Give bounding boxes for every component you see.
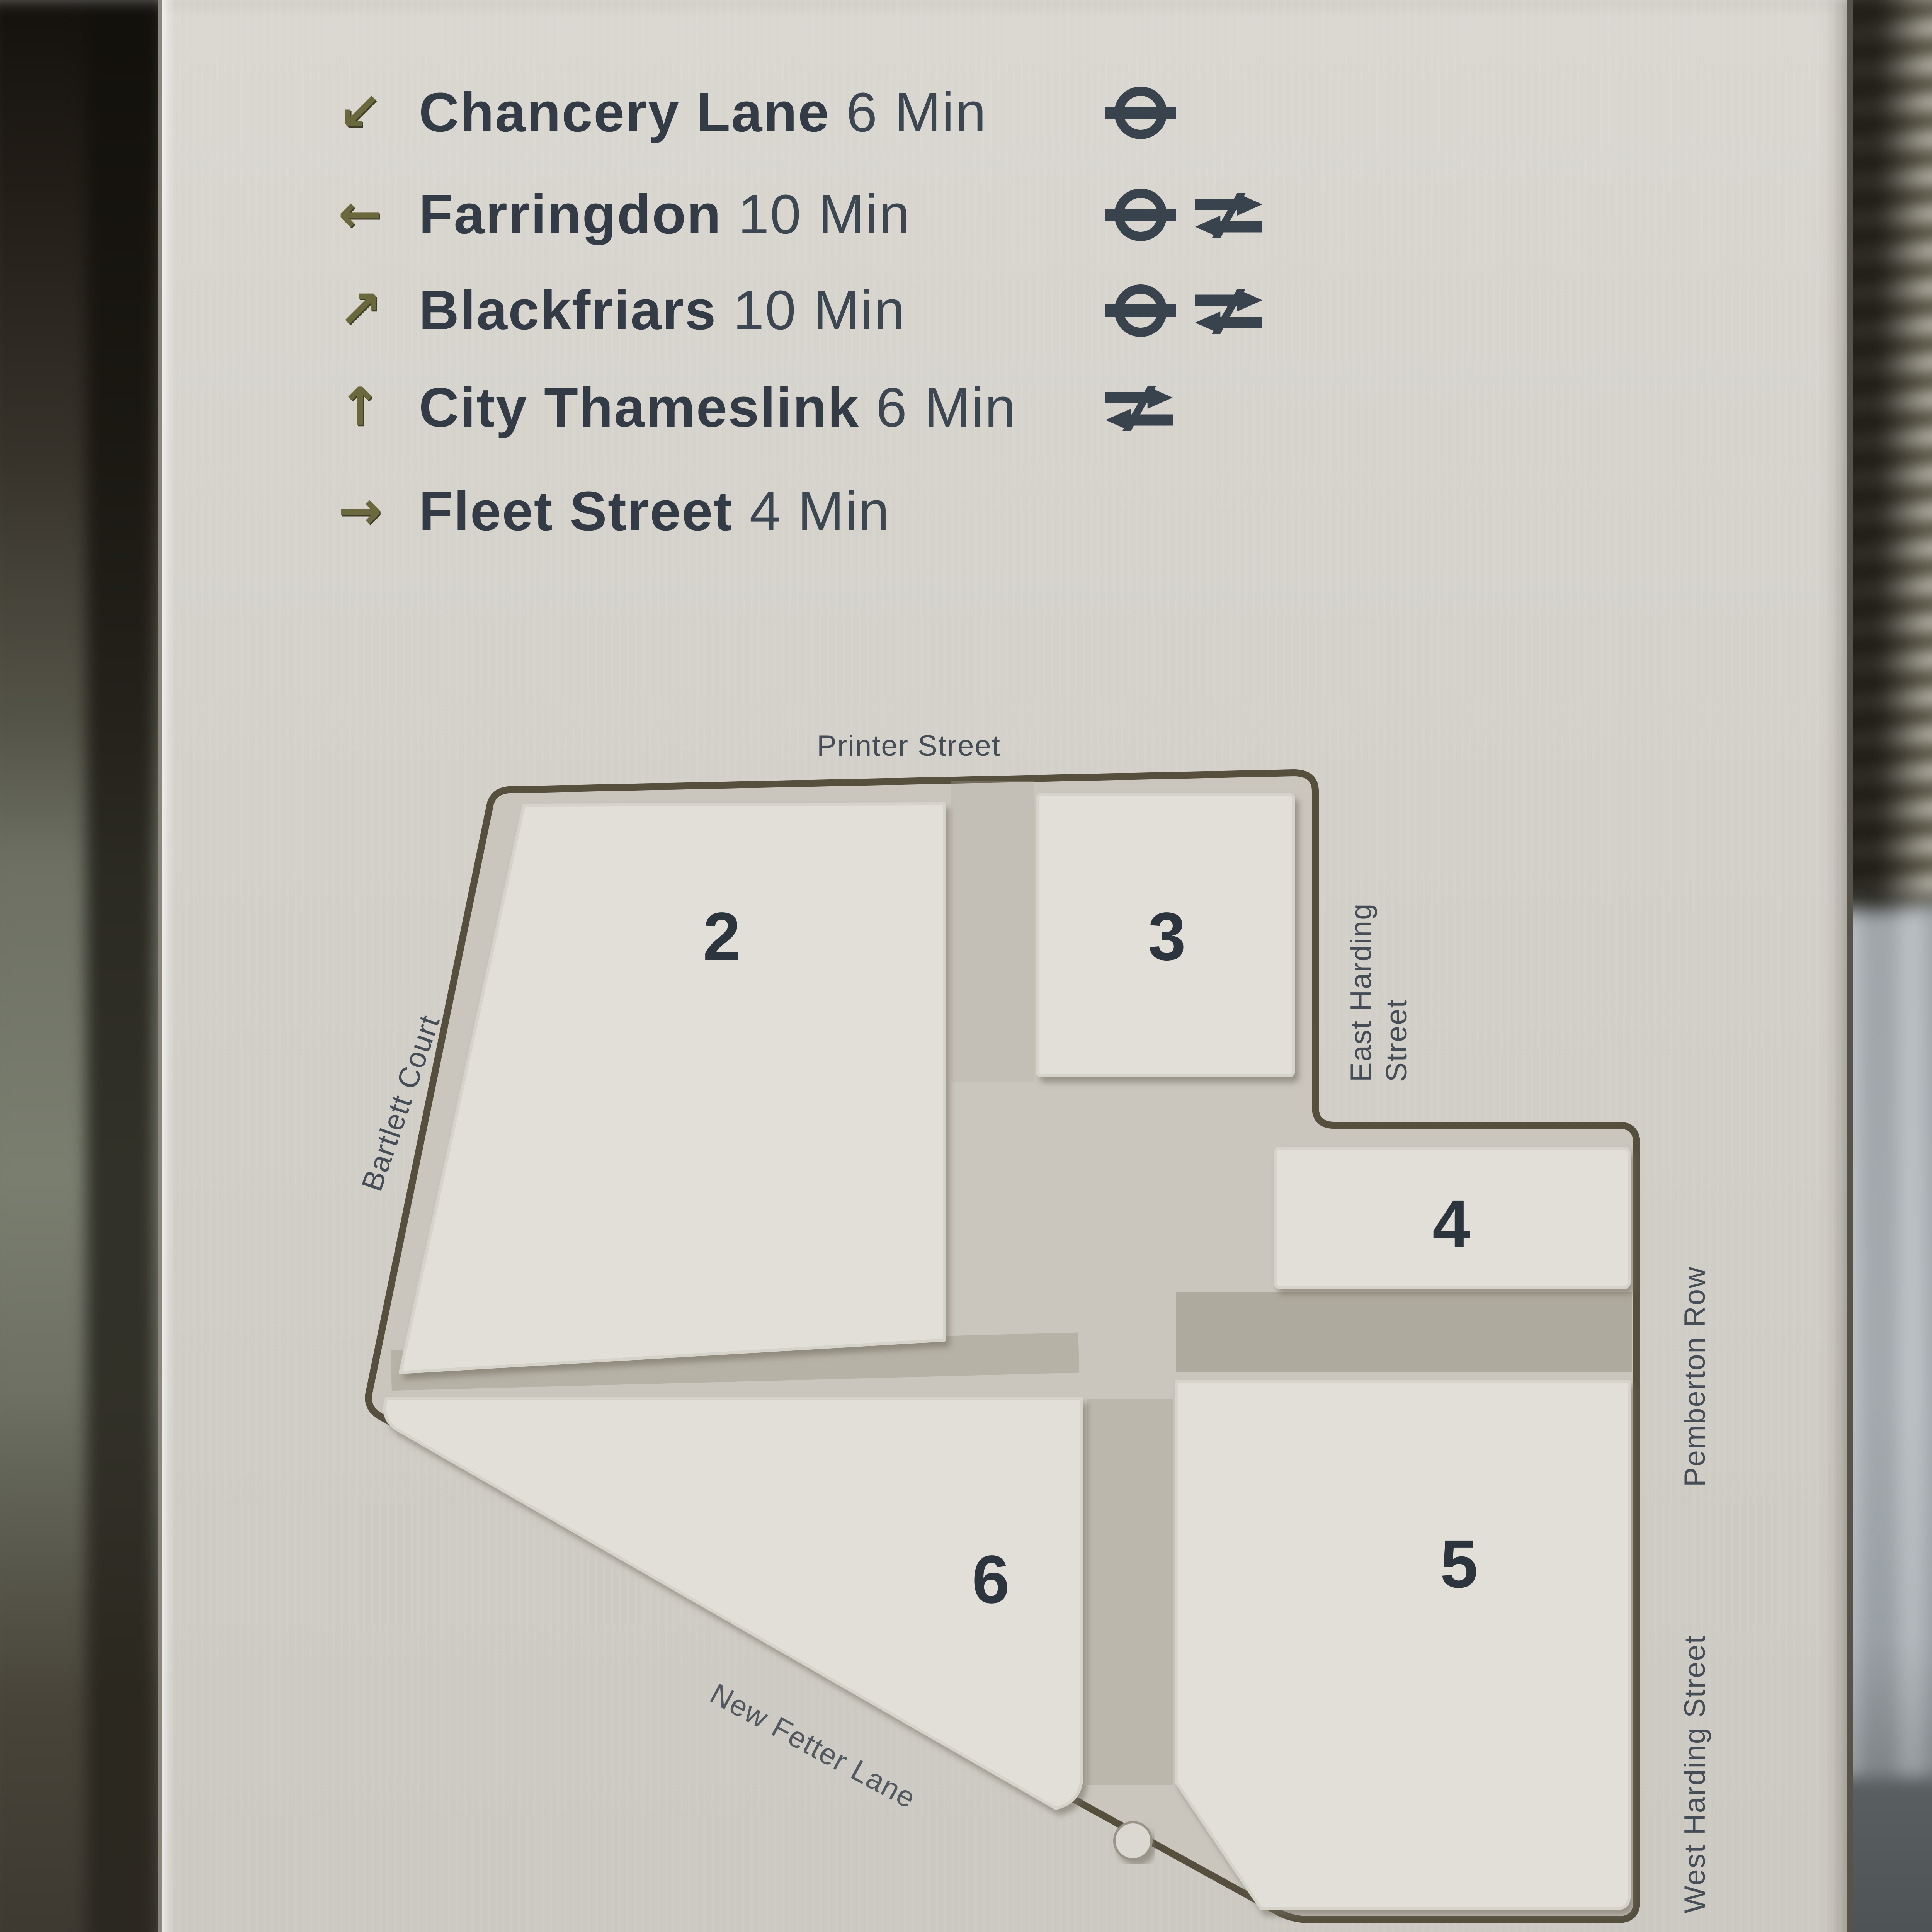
walk-time: 4 Min — [750, 479, 890, 543]
street-label-line: Street — [1380, 999, 1413, 1082]
street-label-east-harding-street: East HardingStreet — [1345, 903, 1413, 1082]
underground-icon — [1105, 283, 1176, 338]
street-label-printer-street: Printer Street — [817, 730, 1001, 762]
walk-time: 6 Min — [846, 80, 987, 144]
destination-name: City Thameslink — [419, 376, 859, 439]
underground-icon — [1105, 187, 1176, 243]
transit-modes — [1105, 283, 1263, 338]
arrow-up-right-icon: ↗ — [311, 274, 410, 348]
stain — [1087, 1399, 1173, 1785]
street-label-west-harding-street: West Harding Street — [1679, 1635, 1711, 1913]
direction-label: Blackfriars 10 Min — [419, 274, 906, 348]
arrow-down-left-icon: ↙ — [311, 76, 410, 150]
national-rail-icon — [1195, 288, 1263, 333]
transit-modes — [1105, 85, 1176, 141]
underground-icon — [1105, 85, 1176, 141]
direction-label: Farringdon 10 Min — [419, 178, 911, 252]
direction-row: ↗ Blackfriars 10 Min — [162, 274, 1847, 348]
block-number-4: 4 — [1432, 1186, 1470, 1262]
direction-label: Fleet Street 4 Min — [419, 474, 890, 549]
map-block-5 — [1176, 1382, 1629, 1909]
direction-row: ↑ City Thameslink 6 Min — [162, 371, 1847, 445]
stain — [1176, 1292, 1632, 1372]
transit-modes — [1105, 380, 1173, 436]
destination-name: Fleet Street — [419, 479, 733, 543]
direction-label: City Thameslink 6 Min — [419, 371, 1017, 445]
destination-name: Blackfriars — [419, 278, 717, 342]
block-number-3: 3 — [1148, 899, 1186, 975]
destination-name: Chancery Lane — [419, 80, 830, 144]
direction-label: Chancery Lane 6 Min — [419, 76, 987, 150]
direction-row: ← Farringdon 10 Min — [162, 178, 1847, 252]
national-rail-icon — [1195, 192, 1263, 237]
transit-modes — [1105, 187, 1263, 243]
background-building-left — [0, 0, 167, 1932]
direction-row: → Fleet Street 4 Min — [162, 474, 1847, 549]
site-map: 2 3 4 5 6 Printer Street Bartlett Court … — [260, 680, 1743, 1932]
arrow-left-icon: ← — [311, 178, 410, 252]
walk-time: 10 Min — [733, 278, 906, 342]
walk-time: 10 Min — [738, 182, 911, 246]
map-marker-dot — [1114, 1822, 1151, 1859]
street-label-line: East Harding — [1345, 903, 1378, 1082]
street-photo: ↙ Chancery Lane 6 Min ← Farringdon 10 Mi… — [0, 0, 1932, 1932]
destination-name: Farringdon — [419, 182, 722, 246]
stain — [951, 781, 1034, 1082]
direction-row: ↙ Chancery Lane 6 Min — [162, 76, 1847, 150]
block-number-5: 5 — [1440, 1526, 1478, 1602]
arrow-up-icon: ↑ — [311, 371, 410, 445]
street-label-pemberton-row: Pemberton Row — [1679, 1266, 1711, 1487]
block-number-2: 2 — [703, 899, 741, 975]
wayfinding-sign: ↙ Chancery Lane 6 Min ← Farringdon 10 Mi… — [158, 0, 1853, 1932]
walk-time: 6 Min — [876, 376, 1017, 439]
arrow-right-icon: → — [311, 474, 410, 549]
block-number-6: 6 — [972, 1542, 1010, 1617]
national-rail-icon — [1105, 386, 1173, 430]
